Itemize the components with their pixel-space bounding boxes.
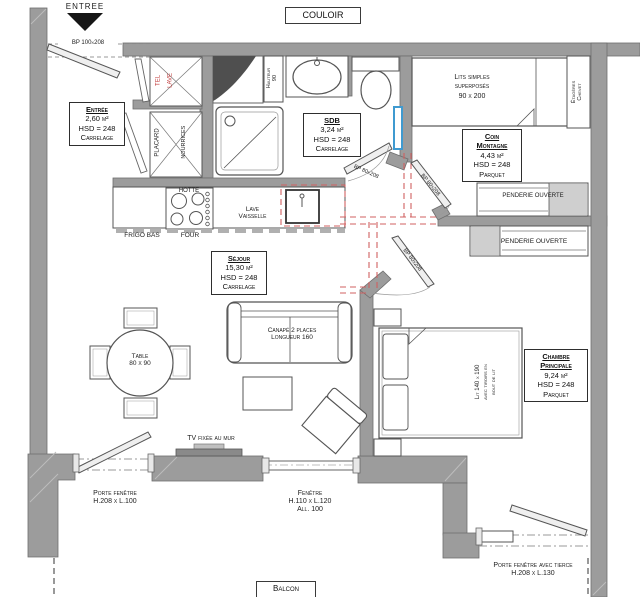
lave-vaisselle-line2: Vaisselle (225, 213, 280, 220)
frigo-label: FRIGO BAS (117, 232, 167, 239)
wall-step-vertical (443, 483, 467, 535)
sdb-room-floor: Carrelage (306, 144, 358, 153)
sdb-room-box: SDB 3,24 m² HSD = 248 Carrelage (303, 113, 361, 157)
shower-tray (216, 107, 283, 175)
wall-left (30, 8, 47, 458)
chambre-room-name2: Principale (527, 361, 585, 370)
bunk-bed-line1: Lits simples (417, 73, 527, 82)
wall-right (591, 43, 607, 597)
fenetre-size: H.110 x L.120 (278, 498, 342, 506)
entrance-arrow-icon (67, 13, 103, 31)
double-bed-label: Lit 140 x 190 avec tiroirs en bout de li… (475, 334, 503, 430)
coin-room-floor: Parquet (465, 170, 519, 179)
chambre-room-name: Chambre (527, 352, 585, 361)
etageres-chevet-label: Étagères Chevet (571, 58, 585, 126)
sejour-room-area: 15,30 m² (214, 263, 264, 272)
closet-nourrices-label: NOURRICES (181, 112, 187, 172)
bed-line3: bout de lit (491, 334, 499, 430)
fenetre-sill: All. 100 (278, 506, 342, 514)
entree-room-name: Entrée (72, 105, 122, 114)
table-line1: Table (116, 353, 164, 360)
bed-line2: avec tiroirs en (483, 334, 491, 430)
toilet (352, 57, 399, 109)
towel-radiator (394, 107, 402, 149)
coffee-table (243, 377, 292, 410)
sdb-room-area: 3,24 m² (306, 125, 358, 134)
four-label: FOUR (172, 232, 208, 239)
wall-vanity-wc (348, 56, 352, 96)
chambre-room-height: HSD = 248 (527, 380, 585, 389)
balcon-box: Balcon (256, 581, 316, 597)
hauteur-value: 90 (272, 56, 278, 100)
wall-coin-chambre (438, 216, 607, 226)
closet-tel-label: TEL (156, 65, 163, 95)
coin-room-area: 4,43 m² (465, 151, 519, 160)
tierce-door-leaf (510, 505, 587, 536)
closet-placard-label: PLACARD (155, 117, 162, 167)
hotte-label: HOTTE (166, 188, 212, 195)
bunk-bed-label: Lits simples superposés 90 x 200 (417, 73, 527, 101)
coin-montagne-room-box: Coin Montagne 4,43 m² HSD = 248 Parquet (462, 129, 522, 182)
chambre-room-box: Chambre Principale 9,24 m² HSD = 248 Par… (524, 349, 588, 402)
wall-stub-chamfer-bottom (360, 271, 391, 298)
sdb-room-name: SDB (306, 116, 358, 125)
table-line2: 80 x 90 (116, 360, 164, 367)
bed-line1: Lit 140 x 190 (475, 334, 483, 430)
tv-wall-mounted (176, 444, 242, 456)
kitchen-sink (286, 190, 319, 223)
lave-vaisselle-line1: Lave (225, 206, 280, 213)
armchair (302, 387, 368, 454)
entree-room-box: Entrée 2,60 m² HSD = 248 Carrelage (69, 102, 125, 146)
entrance-door-leaf (47, 44, 120, 78)
porte-fenetre-tierce (476, 505, 589, 546)
chambre-room-area: 9,24 m² (527, 371, 585, 380)
porte-fenetre-left (73, 432, 154, 473)
wall-sejour-chambre (360, 290, 373, 456)
lave-vaisselle-label: Lave Vaisselle (225, 206, 280, 221)
coin-room-name: Coin (465, 132, 519, 141)
wall-kitchen-top (113, 178, 345, 187)
fenetre-middle (262, 458, 360, 473)
fenetre-label: Fenêtre H.110 x L.120 All. 100 (278, 490, 342, 514)
entree-room-area: 2,60 m² (72, 114, 122, 123)
nightstand-bottom (374, 439, 401, 456)
sofa-label: Canapé 2 places Longueur 160 (252, 327, 332, 342)
bunk-bed-line2: superposés (417, 82, 527, 91)
sofa-line1: Canapé 2 places (252, 327, 332, 334)
sejour-room-floor: Carrelage (214, 282, 264, 291)
wall-top (123, 43, 640, 56)
chevet-text: Chevet (577, 58, 583, 126)
penderie-coin-label: PENDERIE OUVERTE (478, 193, 588, 200)
sdb-room-height: HSD = 248 (306, 135, 358, 144)
sejour-room-name: Séjour (214, 254, 264, 263)
coin-room-height: HSD = 248 (465, 160, 519, 169)
sejour-room-height: HSD = 248 (214, 273, 264, 282)
entree-room-height: HSD = 248 (72, 124, 122, 133)
floor-plan: ENTREE COULOIR BP 100x208 TEL LAVE PLACA… (0, 0, 640, 597)
entree-arrow-label: ENTREE (58, 2, 112, 11)
tierce-fixed-pane (480, 531, 513, 542)
wall-band-right (358, 456, 467, 483)
wall-band-tv (152, 456, 263, 481)
tv-label: TV fixée au mur (176, 435, 246, 443)
closet-lave-label: LAVE (168, 65, 175, 95)
porte-fenetre-leaf (76, 432, 151, 473)
chambre-room-floor: Parquet (527, 390, 585, 399)
table-label: Table 80 x 90 (116, 353, 164, 368)
entrance-door-label: BP 100x208 (58, 40, 118, 47)
wall-chambre-bottom (443, 533, 479, 558)
porte-fenetre-size: H.208 x L.100 (80, 498, 150, 506)
fenetre-name: Fenêtre (278, 490, 342, 498)
porte-fenetre-name: Porte fenêtre (80, 490, 150, 498)
duct-shaft (213, 56, 263, 103)
sofa-line2: Longueur 160 (252, 334, 332, 341)
sejour-room-box: Séjour 15,30 m² HSD = 248 Carrelage (211, 251, 267, 295)
entree-room-floor: Carrelage (72, 133, 122, 142)
coin-room-name2: Montagne (465, 141, 519, 150)
porte-fenetre-tierce-label: Porte fenêtre avec tierce H.208 x L.130 (468, 562, 598, 578)
porte-fenetre-label: Porte fenêtre H.208 x L.100 (80, 490, 150, 506)
bunk-bed-line3: 90 x 200 (417, 92, 527, 101)
nightstand-top (374, 309, 401, 326)
hauteur-90-label: Hauteur 90 (266, 56, 280, 100)
washbasin (286, 56, 348, 97)
tierce-size: H.208 x L.130 (468, 570, 598, 578)
penderie-chambre-label: PENDERIE OUVERTE (480, 238, 588, 245)
tierce-name: Porte fenêtre avec tierce (468, 562, 598, 570)
wall-corner-bottom-left (28, 454, 75, 557)
couloir-box: COULOIR (285, 7, 361, 24)
